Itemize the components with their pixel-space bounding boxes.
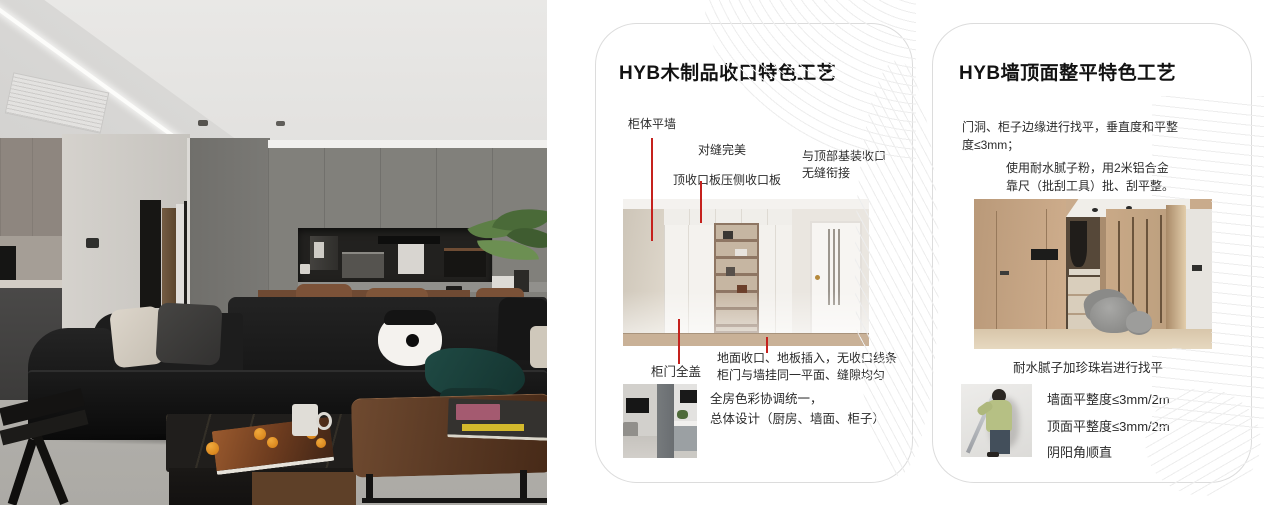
door-handle bbox=[1192, 265, 1202, 271]
color-note-line1: 全房色彩协调统一， bbox=[710, 390, 885, 410]
ceiling-spotlight bbox=[1092, 208, 1098, 212]
annotation-line bbox=[700, 181, 702, 223]
cloakroom-photo bbox=[974, 199, 1212, 349]
lounge-chair-leg bbox=[8, 438, 38, 505]
table-frame-bar bbox=[362, 498, 547, 503]
thumb-base-cabinet bbox=[674, 426, 697, 451]
ceiling-spotlight bbox=[276, 121, 285, 126]
cup-rack bbox=[342, 252, 384, 278]
door-handle bbox=[1000, 271, 1009, 275]
page: HYB木制品收口特色工艺 柜体平墙 对缝完美 顶收口板压侧收口板 与顶部基装收口… bbox=[0, 0, 1280, 505]
annotation-line bbox=[651, 138, 653, 241]
thumb-floor bbox=[623, 436, 657, 458]
speaker bbox=[444, 248, 486, 277]
shelf-item bbox=[735, 249, 747, 256]
color-coordination-note: 全房色彩协调统一， 总体设计（厨房、墙面、柜子） bbox=[710, 390, 885, 429]
callout-perfect-seam: 对缝完美 bbox=[698, 142, 746, 159]
hanging-clothes bbox=[1070, 221, 1087, 267]
cushion-gray bbox=[155, 302, 222, 365]
wardrobe-render-photo bbox=[623, 199, 869, 346]
espresso-machine bbox=[398, 244, 424, 274]
wardrobe-handle-slit bbox=[1146, 219, 1148, 319]
magazine-title bbox=[462, 424, 524, 431]
hidden-door-seam bbox=[1046, 209, 1047, 341]
ceiling-soffit bbox=[0, 0, 292, 152]
orange-fruit bbox=[316, 438, 326, 448]
light-switch bbox=[86, 238, 99, 248]
render-wood-floor bbox=[623, 333, 869, 346]
shelf-item bbox=[726, 267, 735, 276]
worker-legs bbox=[990, 430, 1010, 454]
hallway-door-frame bbox=[140, 200, 161, 308]
putty-paragraph-line1: 使用耐水腻子粉，用2米铝合金 bbox=[1006, 160, 1174, 178]
wood-panel-wall bbox=[974, 199, 1066, 349]
orange-fruit bbox=[267, 437, 278, 448]
wardrobe-handle-slit bbox=[1160, 215, 1162, 323]
callout-full-cover-door: 柜门全盖 bbox=[651, 364, 701, 381]
plaster-worker-thumbnail bbox=[961, 384, 1032, 457]
thumb-tv bbox=[626, 398, 649, 413]
light-glow bbox=[623, 291, 869, 335]
color-note-line2: 总体设计（厨房、墙面、柜子） bbox=[710, 410, 885, 430]
hallway-jamb bbox=[176, 204, 184, 307]
hidden-door-seam bbox=[996, 211, 997, 341]
callout-cabinet-flush-wall: 柜体平墙 bbox=[628, 116, 676, 133]
worker-shoe bbox=[987, 452, 999, 457]
leveling-paragraph-line1: 门洞、柜子边缘进行找平，垂直度和平整 bbox=[962, 119, 1178, 137]
door-knob bbox=[815, 275, 820, 280]
photo-caption: 耐水腻子加珍珠岩进行找平 bbox=[1013, 357, 1163, 376]
magazine-cover-art bbox=[456, 404, 500, 420]
cushion-beige bbox=[530, 326, 547, 368]
callout-top-closing-board: 顶收口板压侧收口板 bbox=[673, 172, 781, 189]
hallway-wood-door bbox=[162, 208, 176, 306]
control-panel bbox=[1031, 249, 1058, 260]
pouf bbox=[1126, 311, 1152, 335]
putty-paragraph: 使用耐水腻子粉，用2米铝合金 靠尺（批刮工具）批、刮平整。 bbox=[1006, 160, 1174, 195]
annotation-line bbox=[678, 319, 680, 364]
overall-design-thumbnail bbox=[623, 384, 697, 458]
thumb-gray-cabinet bbox=[657, 384, 674, 458]
card-title: HYB墙顶面整平特色工艺 bbox=[959, 62, 1176, 86]
coffee-machine-face bbox=[314, 242, 324, 258]
ceiling-spotlight bbox=[198, 120, 208, 126]
wardrobe-shelf bbox=[1069, 269, 1101, 275]
stone-table-base bbox=[252, 472, 356, 505]
kitchen-upper-cabinets bbox=[0, 138, 64, 238]
coffee-machine bbox=[0, 246, 16, 282]
putty-paragraph-line2: 靠尺（批刮工具）批、刮平整。 bbox=[1006, 178, 1174, 196]
mug-handle bbox=[316, 412, 332, 430]
mug bbox=[292, 404, 318, 436]
panda-cushion-eye bbox=[406, 334, 419, 347]
thumb-kitchen-floor bbox=[674, 451, 697, 458]
panda-cushion-ears bbox=[384, 310, 436, 325]
leveling-paragraph: 门洞、柜子边缘进行找平，垂直度和平整 度≤3mm； bbox=[962, 119, 1178, 154]
wood-floor bbox=[974, 329, 1212, 349]
living-room-photo bbox=[0, 0, 547, 505]
spec-wall-flatness: 墙面平整度≤3mm/2m bbox=[1047, 389, 1170, 408]
annotation-line bbox=[766, 337, 768, 353]
orange-fruit bbox=[254, 428, 266, 440]
thumb-oven bbox=[680, 390, 697, 403]
cup bbox=[300, 264, 310, 274]
leveling-paragraph-line2: 度≤3mm； bbox=[962, 137, 1178, 155]
shelf-item bbox=[723, 231, 733, 239]
socket-bar bbox=[378, 236, 440, 244]
open-door bbox=[1166, 205, 1186, 344]
orange-fruit bbox=[206, 442, 219, 455]
bright-room-beyond bbox=[1186, 209, 1212, 341]
thumb-plant bbox=[677, 410, 688, 419]
wardrobe-handle-slit bbox=[1132, 217, 1134, 313]
